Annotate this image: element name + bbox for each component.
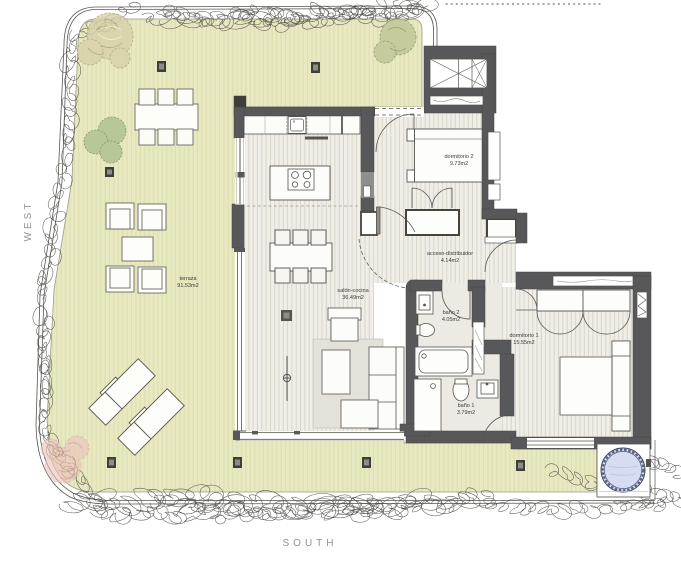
svg-text:36.49m2: 36.49m2 <box>342 295 364 301</box>
svg-text:3.79m2: 3.79m2 <box>457 410 475 416</box>
svg-text:terraza: terraza <box>179 276 197 282</box>
svg-text:9.73m2: 9.73m2 <box>450 161 468 167</box>
svg-text:91.53m2: 91.53m2 <box>177 283 198 289</box>
svg-text:dormitorio 1: dormitorio 1 <box>509 333 538 339</box>
svg-text:acceso-distribuidor: acceso-distribuidor <box>427 251 473 257</box>
svg-text:WEST: WEST <box>23 201 34 242</box>
svg-text:salón-cocina: salón-cocina <box>337 288 369 294</box>
svg-text:baño 2: baño 2 <box>443 310 460 316</box>
svg-text:4.05m2: 4.05m2 <box>442 317 460 323</box>
svg-text:15.55m2: 15.55m2 <box>513 340 534 346</box>
svg-text:baño 1: baño 1 <box>458 403 475 409</box>
svg-text:SOUTH: SOUTH <box>283 538 338 549</box>
svg-text:dormitorio 2: dormitorio 2 <box>444 154 473 160</box>
svg-text:4.14m2: 4.14m2 <box>441 258 459 264</box>
